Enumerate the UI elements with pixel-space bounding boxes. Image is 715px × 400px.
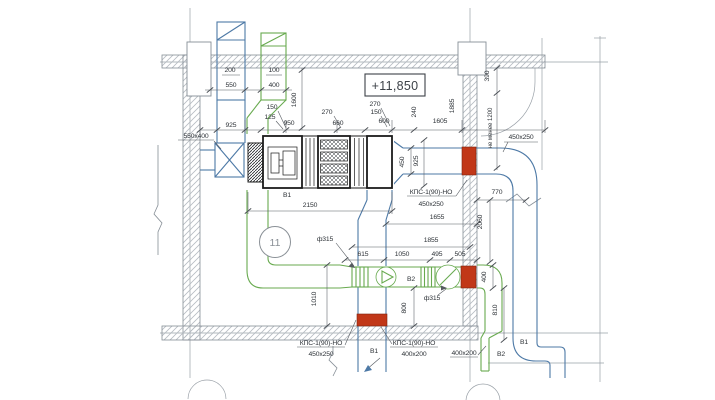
dim-1885: 1885 (449, 98, 456, 113)
flex-section (248, 143, 263, 182)
dim-1655: 1655 (430, 214, 445, 221)
top-wall (162, 55, 545, 68)
dim-800: 800 (401, 302, 408, 313)
label-size-450x250: 450x250 (508, 134, 533, 141)
hvac-plan-drawing: 200 100 550 400 925 550x400 150 125 950 … (0, 0, 715, 400)
ahu-b1 (246, 134, 394, 190)
label-system-b1-drop: В1 (370, 348, 378, 355)
dim-200: 200 (225, 67, 236, 74)
dim-125: 125 (265, 114, 276, 121)
label-size-550x400: 550x400 (183, 133, 208, 140)
fire-damper (462, 147, 476, 175)
label-dia-315: ф315 (424, 295, 441, 302)
cad-canvas: 200 100 550 400 925 550x400 150 125 950 … (0, 0, 715, 400)
dim-505: 505 (455, 251, 466, 258)
dim-2150: 2150 (303, 202, 318, 209)
dim-925: 925 (413, 155, 420, 166)
note-min-clearance: не менее 1200 (488, 107, 494, 148)
dim-810: 810 (492, 304, 499, 315)
dim-100: 100 (269, 67, 280, 74)
label-damper-size: 450x250 (418, 201, 443, 208)
dim-660: 660 (333, 120, 344, 127)
dim-2060: 2060 (477, 214, 484, 229)
dim-1010: 1010 (311, 291, 318, 306)
label-size-400x200: 400x200 (451, 350, 476, 357)
label-damper-size: 400x200 (401, 351, 426, 358)
dim-400: 400 (269, 82, 280, 89)
dim-1600: 1600 (291, 92, 298, 107)
dim-600: 600 (379, 118, 390, 125)
label-damper-model: КПС-1(90)-НО (410, 189, 453, 196)
label-damper-model: КПС-1(90)-НО (393, 340, 436, 347)
dim-925: 925 (226, 122, 237, 129)
dim-1855: 1855 (424, 237, 439, 244)
label-damper-size: 450x250 (308, 351, 333, 358)
label-system-b1-end: В1 (520, 339, 528, 346)
dim-150: 150 (371, 109, 382, 116)
fan-section (263, 136, 302, 188)
intake-grille-b1 (200, 143, 244, 177)
duct-b2-run (340, 265, 461, 289)
fire-damper (461, 266, 476, 288)
grid-bubbles (188, 380, 500, 400)
dim-240: 240 (411, 106, 418, 117)
dim-450: 450 (399, 156, 406, 167)
dim-270: 270 (370, 101, 381, 108)
walls (162, 42, 545, 340)
dim-770: 770 (492, 189, 503, 196)
fire-damper (357, 314, 387, 326)
dim-495: 495 (432, 251, 443, 258)
dim-1605: 1605 (433, 118, 448, 125)
elevation-mark: +11,850 (372, 79, 419, 93)
label-system-b2: В2 (407, 276, 415, 283)
bottom-wall (162, 326, 478, 340)
position-badge-number: 11 (270, 237, 281, 249)
dim-150: 150 (267, 104, 278, 111)
column-left (187, 42, 211, 96)
dim-270: 270 (322, 109, 333, 116)
dim-1050: 1050 (395, 251, 410, 258)
label-damper-model: КПС-1(90)-НО (300, 340, 343, 347)
dim-390: 390 (484, 70, 491, 81)
label-dia-315: ф315 (317, 236, 334, 243)
dim-950: 950 (284, 120, 295, 127)
dim-615: 615 (358, 251, 369, 258)
outlet-section (367, 136, 392, 188)
column-right (458, 42, 486, 75)
label-system-b2-end: В2 (497, 351, 505, 358)
dim-550: 550 (226, 82, 237, 89)
dim-400: 400 (481, 271, 488, 282)
label-system-b1-unit: В1 (283, 192, 291, 199)
left-wall (183, 55, 200, 340)
